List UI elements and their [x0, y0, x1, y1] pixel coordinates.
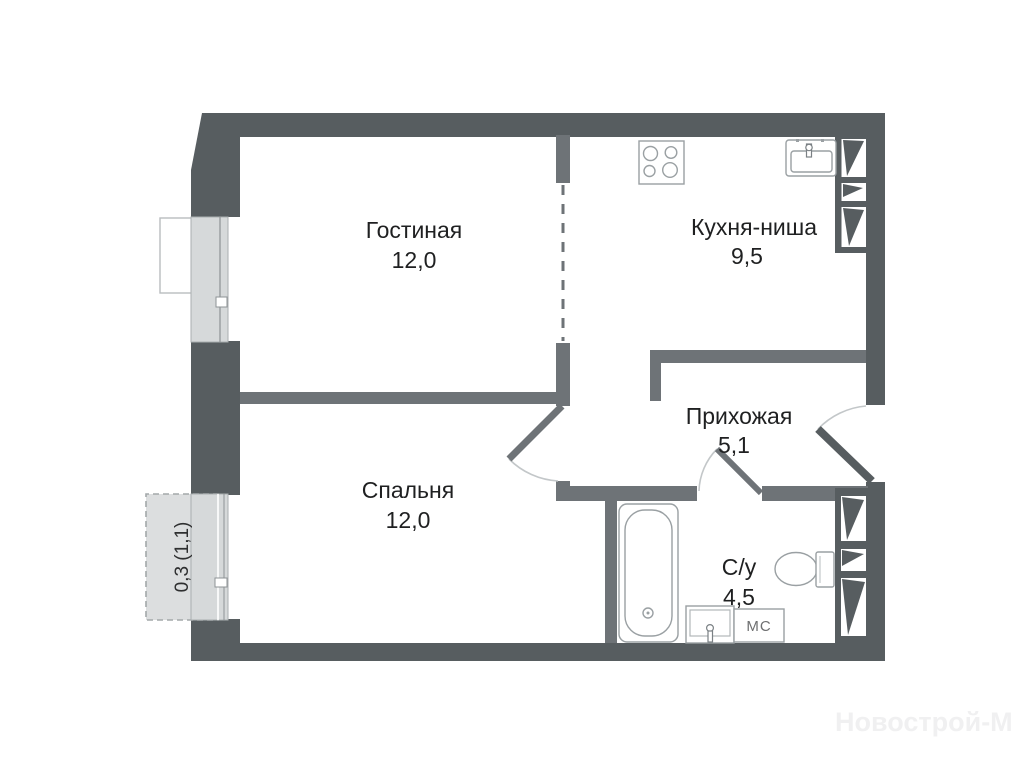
watermark-text: Новострой-М: [835, 707, 1013, 737]
kitchen-sink-icon: [786, 139, 836, 176]
faucet: [708, 631, 713, 642]
room-area-kitchen: 9,5: [731, 243, 763, 269]
inner-walls: [240, 135, 868, 643]
door-swing-arc: [509, 459, 558, 481]
washing-machine-label: МС: [746, 618, 771, 635]
bathroom-vent-shaft: [835, 488, 870, 643]
room-label-living: Гостиная: [366, 217, 463, 243]
balcony-door-block: [191, 494, 228, 620]
wall-living-bedroom: [240, 392, 568, 404]
faucet-knob: [707, 625, 714, 632]
wall-bathroom-top-left: [556, 486, 697, 501]
living-room-window: [160, 217, 228, 342]
room-labels: Гостиная 12,0 Кухня-ниша 9,5 Прихожая 5,…: [362, 214, 817, 610]
wall-top: [202, 113, 885, 137]
door-leaf: [509, 406, 562, 459]
drain-dot: [647, 612, 650, 615]
room-label-kitchen: Кухня-ниша: [691, 214, 817, 240]
floor-plan-drawing: 0,3 (1,1): [0, 0, 1024, 768]
bedroom-balcony: 0,3 (1,1): [146, 494, 228, 620]
balcony-slab-outline: [160, 218, 192, 293]
window-sash-tick: [216, 297, 227, 307]
room-label-bedroom: Спальня: [362, 477, 454, 503]
balcony-door-sash-tick: [215, 578, 227, 587]
wall-stub-top: [556, 135, 570, 183]
stove-icon: [639, 141, 684, 184]
wall-bottom: [191, 643, 885, 661]
room-area-bedroom: 12,0: [386, 507, 431, 533]
kitchen-vent-shaft: [835, 133, 867, 253]
room-label-hallway: Прихожая: [686, 403, 793, 429]
bathtub-icon: [619, 504, 678, 642]
room-area-living: 12,0: [392, 247, 437, 273]
wall-left-chamfer: [191, 113, 240, 217]
wall-left-middle: [191, 341, 240, 495]
room-area-bathroom: 4,5: [723, 584, 755, 610]
sink-tick: [821, 139, 824, 142]
door-swing-arc: [699, 449, 717, 491]
faucet-knob: [806, 144, 812, 150]
wall-bathroom-left: [605, 498, 617, 643]
toilet-icon: [775, 552, 834, 587]
balcony-area-label: 0,3 (1,1): [172, 522, 193, 593]
door-leaf: [818, 429, 872, 481]
washing-machine-place: МС: [734, 609, 784, 642]
floor-plan-page: 0,3 (1,1): [0, 0, 1024, 768]
room-area-hallway: 5,1: [718, 432, 750, 458]
window-block: [191, 217, 228, 342]
sink-tick: [796, 139, 799, 142]
bathroom-sink-icon: [686, 606, 734, 643]
bedroom-door: [509, 406, 562, 481]
door-swing-arc: [818, 406, 866, 429]
wall-right-upper: [866, 113, 885, 405]
wall-hallway-horizontal: [650, 350, 866, 363]
wall-hallway-vertical: [650, 350, 661, 401]
wall-stub-bottom: [556, 343, 570, 406]
entrance-door: [818, 406, 872, 481]
room-label-bathroom: С/у: [722, 554, 757, 580]
